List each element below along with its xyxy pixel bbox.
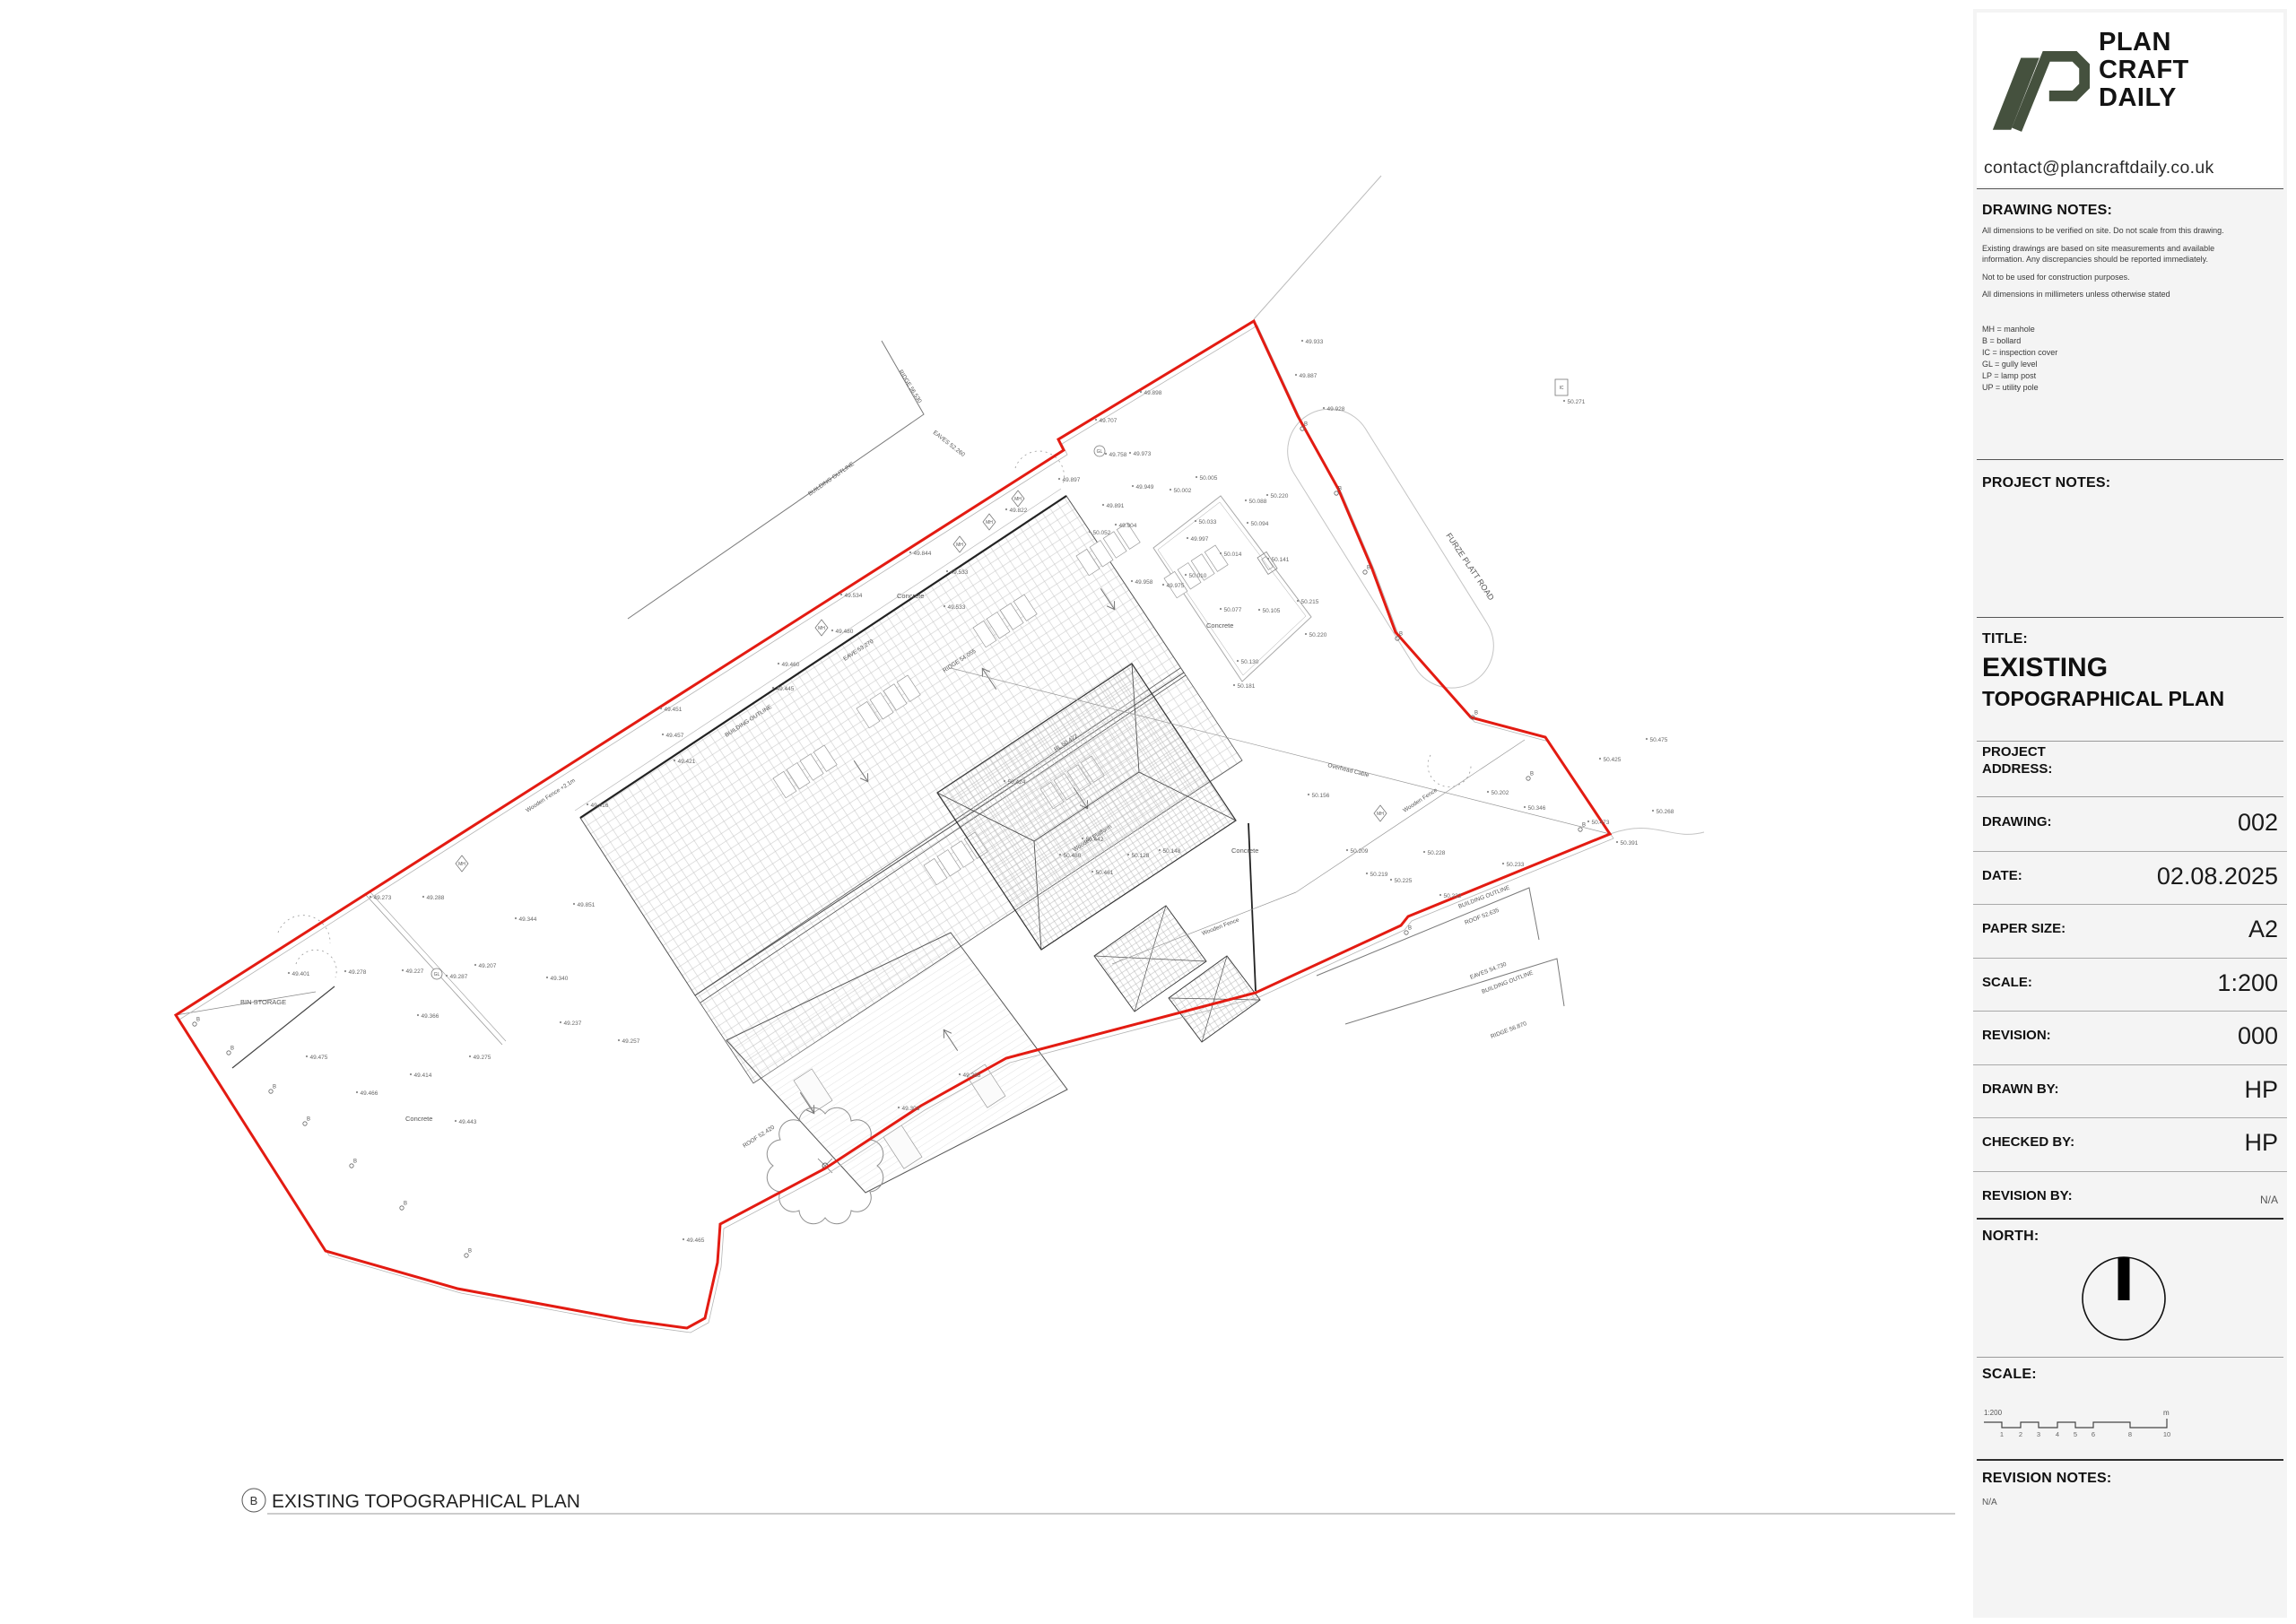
scale-tick: 4 (2056, 1430, 2059, 1438)
scale-bar-ticks: 123456810 (2000, 1430, 2170, 1438)
spot-level-marker (1390, 879, 1392, 881)
utility-label: MH (1377, 812, 1384, 817)
bollard-label: B (273, 1085, 276, 1090)
spot-level-value: 50.014 (1224, 551, 1242, 558)
abbreviation-legend: MH = manhole B = bollard IC = inspection… (1982, 324, 2274, 394)
spot-level-marker (469, 1055, 471, 1057)
spot-level-marker (840, 594, 842, 595)
field-value: 002 (2238, 809, 2278, 837)
spot-level-marker (1220, 608, 1222, 610)
title-block-panel: PLAN CRAFT DAILY contact@plancraftdaily.… (1973, 9, 2287, 1618)
spot-level-value: 50.094 (1251, 521, 1269, 527)
spot-level-value: 49.475 (310, 1055, 328, 1061)
spot-level-marker (573, 903, 575, 905)
plan-label: Concrete (1206, 621, 1233, 630)
field-label: DRAWING: (1982, 814, 2052, 829)
spot-level-value: 49.822 (1010, 508, 1028, 514)
spot-level-marker (1301, 340, 1303, 342)
spot-level-marker (417, 1014, 419, 1016)
spot-level-value: 49.887 (1300, 373, 1318, 379)
brand-line-3: DAILY (2099, 84, 2189, 112)
spot-level-marker (1185, 574, 1187, 576)
title-label: TITLE: (1982, 631, 2224, 647)
spot-level-marker (1366, 873, 1368, 874)
field-label: CHECKED BY: (1982, 1134, 2074, 1150)
spot-level-value: 49.844 (914, 551, 932, 557)
north-arrow-icon (2072, 1248, 2179, 1352)
spot-level-marker (1323, 407, 1325, 409)
spot-level-marker (1089, 531, 1091, 533)
brand-header: PLAN CRAFT DAILY contact@plancraftdaily.… (1977, 13, 2283, 187)
bollard-label: B (1338, 487, 1342, 492)
plan-label: BUILDING OUTLINE (807, 461, 856, 498)
spot-level-marker (515, 917, 517, 919)
drawing-note: All dimensions to be verified on site. D… (1982, 225, 2251, 237)
spot-level-value: 50.128 (1132, 853, 1150, 859)
spot-level-value: 49.401 (292, 971, 310, 977)
spot-level-marker (1587, 821, 1589, 822)
plan-label: Overhead Cable (1327, 762, 1370, 778)
brand-line-2: CRAFT (2099, 56, 2189, 84)
spot-level-value: 49.366 (422, 1013, 439, 1020)
spot-level-value: 49.451 (665, 707, 683, 713)
spot-level-value: 49.466 (361, 1090, 378, 1097)
spot-level-marker (1159, 849, 1161, 851)
bollard-label: B (353, 1159, 357, 1165)
field-row-revision: REVISION:000 (1973, 1012, 2287, 1065)
legend-item: B = bollard (1982, 335, 2274, 347)
spot-level-marker (446, 975, 448, 977)
spot-level-value: 50.130 (1241, 659, 1259, 665)
utility-label: MH (818, 626, 825, 631)
spot-level-marker (546, 977, 548, 978)
scale-tick: 10 (2163, 1430, 2170, 1438)
bollard-label: B (404, 1202, 407, 1207)
plan-label: RIDGE 56.530 (897, 369, 923, 404)
north-heading: NORTH: (1982, 1229, 2039, 1245)
bollard-label: B (1399, 632, 1403, 638)
spot-level-value: 49.533 (948, 604, 966, 611)
spot-level-value: 50.002 (1174, 488, 1192, 494)
field-value: A2 (2248, 916, 2278, 943)
spot-level-marker (356, 1091, 358, 1093)
neighbour-outline-southeast-1 (1317, 888, 1539, 976)
brand-line-1: PLAN (2099, 29, 2189, 56)
spot-level-value: 49.928 (1327, 406, 1345, 413)
drawing-title-line-1: EXISTING (1982, 653, 2224, 683)
spot-level-value: 50.228 (1428, 850, 1446, 856)
legend-item: IC = inspection cover (1982, 347, 2274, 359)
bollard-label: B (1408, 926, 1412, 932)
spot-level-marker (662, 734, 664, 735)
spot-level-value: 50.052 (1093, 530, 1111, 536)
spot-level-value: 49.416 (591, 803, 609, 809)
field-value: HP (2244, 1076, 2278, 1104)
spot-level-value: 50.346 (1528, 805, 1546, 812)
spot-level-marker (306, 1055, 308, 1057)
bollard-label: B (196, 1018, 200, 1023)
spot-level-value: 49.975 (1167, 583, 1185, 589)
spot-level-marker (1423, 851, 1425, 853)
spot-level-value: 49.758 (1109, 452, 1127, 458)
legend-item: UP = utility pole (1982, 382, 2274, 394)
title-section: TITLE: EXISTING TOPOGRAPHICAL PLAN (1982, 631, 2224, 711)
field-row-date: DATE:02.08.2025 (1973, 852, 2287, 906)
utility-label: MH (986, 520, 993, 525)
spot-level-marker (1646, 738, 1648, 740)
spot-level-marker (1267, 558, 1269, 560)
field-value: N/A (2260, 1194, 2278, 1206)
spot-level-marker (1127, 854, 1129, 855)
scale-tick: 6 (2092, 1430, 2095, 1438)
spot-level-marker (402, 969, 404, 971)
plan-label: EAVES 54.730 (1469, 961, 1508, 981)
spot-level-marker (288, 972, 290, 974)
utility-label: MH (956, 543, 963, 548)
spot-level-value: 50.232 (1444, 893, 1462, 899)
field-row-drawing: DRAWING:002 (1973, 798, 2287, 852)
spot-level-value: 49.904 (1119, 523, 1137, 529)
field-value: 000 (2238, 1022, 2278, 1050)
spot-level-marker (946, 570, 948, 572)
spot-level-value: 49.973 (1134, 451, 1152, 457)
spot-level-value: 50.219 (1370, 872, 1388, 878)
spot-level-value: 49.534 (845, 593, 863, 599)
spot-level-marker (474, 964, 476, 966)
spot-level-value: 49.997 (1191, 536, 1209, 543)
spot-level-marker (560, 1021, 561, 1023)
project-notes-heading: PROJECT NOTES: (1982, 475, 2110, 491)
spot-level-marker (422, 896, 424, 898)
spot-level-marker (1132, 485, 1134, 487)
spot-level-value: 50.077 (1224, 607, 1242, 613)
spot-level-marker (1237, 660, 1239, 662)
plan-label: Concrete (405, 1115, 432, 1123)
spot-level-marker (1005, 508, 1007, 510)
spot-level-value: 50.271 (1568, 399, 1586, 405)
spot-level-value: 49.227 (406, 968, 424, 975)
spot-level-value: 50.461 (1096, 870, 1114, 876)
drawing-note: All dimensions in millimeters unless oth… (1982, 289, 2251, 300)
spot-level-marker (909, 551, 911, 553)
utility-label: MH (1014, 497, 1022, 502)
field-label: REVISION BY: (1982, 1188, 2073, 1203)
spot-level-value: 50.033 (1199, 519, 1217, 525)
spot-level-marker (1004, 780, 1005, 782)
spot-level-value: 49.480 (836, 629, 854, 635)
spot-level-marker (1131, 580, 1133, 582)
spot-level-value: 49.897 (1063, 477, 1081, 483)
drawing-note: Not to be used for construction purposes… (1982, 272, 2251, 283)
spot-level-marker (1195, 520, 1196, 522)
drawing-note: Existing drawings are based on site meas… (1982, 243, 2251, 265)
road-furze-platt (1272, 393, 1509, 704)
spot-level-value: 49.288 (963, 1073, 981, 1079)
scale-tick: 5 (2074, 1430, 2077, 1438)
spot-level-marker (1652, 810, 1654, 812)
spot-level-value: 50.181 (1238, 683, 1256, 690)
plan-label: RIDGE 56.870 (1490, 1020, 1527, 1040)
legend-item: MH = manhole (1982, 324, 2274, 335)
spot-level-marker (1297, 600, 1299, 602)
spot-level-marker (1245, 499, 1247, 501)
scale-bar-ratio: 1:200 (1984, 1409, 2003, 1417)
spot-level-value: 50.424 (1008, 779, 1026, 786)
spot-level-marker (1115, 524, 1117, 525)
brand-email: contact@plancraftdaily.co.uk (1984, 158, 2214, 178)
spot-level-marker (1305, 633, 1307, 635)
spot-level-marker (1266, 494, 1268, 496)
spot-level-value: 49.207 (479, 963, 497, 969)
spot-level-value: 50.220 (1271, 493, 1289, 499)
utility-label: MH (458, 862, 465, 867)
spot-level-marker (683, 1238, 684, 1240)
spot-level-marker (618, 1039, 620, 1041)
neighbour-outline-southeast-2 (1345, 959, 1564, 1024)
plan-label: Concrete (1231, 847, 1258, 855)
spot-level-marker (1220, 552, 1222, 554)
spot-level-value: 49.949 (1136, 484, 1154, 491)
spot-level-marker (1102, 504, 1104, 506)
spot-level-value: 49.707 (1100, 418, 1118, 424)
spot-level-value: 49.851 (578, 902, 596, 908)
spot-level-value: 50.220 (1309, 632, 1327, 638)
spot-level-marker (1439, 894, 1441, 896)
spot-level-marker (1170, 489, 1171, 491)
field-label: PAPER SIZE: (1982, 921, 2066, 936)
project-address-section: PROJECT ADDRESS: (1982, 744, 2052, 778)
spot-level-value: 50.268 (1657, 809, 1674, 815)
spot-level-value: 49.288 (427, 895, 445, 901)
spot-level-marker (674, 760, 675, 761)
spot-level-marker (1105, 453, 1107, 455)
spot-level-value: 49.460 (782, 662, 800, 668)
spot-level-value: 50.425 (1604, 757, 1622, 763)
spot-level-marker (370, 896, 371, 898)
spot-level-value: 50.005 (1200, 475, 1218, 482)
spot-level-value: 49.465 (687, 1238, 705, 1244)
spot-level-value: 49.445 (777, 686, 795, 692)
plan-label: EAVES 52.260 (932, 430, 966, 458)
spot-level-value: 49.237 (564, 1020, 582, 1027)
plan-label: Concrete (897, 592, 924, 600)
spot-level-marker (1187, 537, 1188, 539)
spot-level-marker (1346, 849, 1348, 851)
field-value: 02.08.2025 (2157, 863, 2278, 890)
bollard-label: B (230, 1046, 234, 1052)
spot-level-value: 50.202 (1492, 790, 1509, 796)
spot-level-value: 50.215 (1301, 599, 1319, 605)
bollard-label: B (1367, 566, 1370, 571)
spot-level-marker (944, 605, 945, 607)
spot-level-marker (1616, 841, 1618, 843)
spot-level-value: 49.344 (519, 916, 537, 923)
spot-level-value: 50.480 (1064, 853, 1082, 859)
spot-level-value: 49.414 (414, 1073, 432, 1079)
utility-label: GL (1097, 449, 1103, 455)
address-label-line-1: PROJECT (1982, 744, 2052, 761)
plan-label: Wooden Fence +2.1m (525, 777, 577, 814)
spot-level-marker (1487, 791, 1489, 793)
spot-level-marker (1295, 374, 1297, 376)
field-row-revision-by: REVISION BY:N/A (1973, 1172, 2287, 1225)
spot-level-marker (898, 1107, 900, 1108)
spot-level-value: 49.533 (951, 569, 969, 576)
spot-level-marker (1140, 391, 1142, 393)
spot-level-value: 50.141 (1272, 557, 1290, 563)
spot-level-marker (1599, 758, 1601, 760)
spot-level-value: 50.233 (1507, 862, 1525, 868)
bollard-label: B (1530, 772, 1534, 777)
spot-level-value: 49.898 (1144, 390, 1162, 396)
bollard-label: B (1474, 711, 1478, 716)
plan-label: ROOF 52.635 (1464, 908, 1500, 926)
spot-level-value: 49.421 (678, 759, 696, 765)
revision-notes-value: N/A (1982, 1498, 1997, 1507)
spot-level-marker (587, 803, 588, 805)
spot-level-marker (1233, 684, 1235, 686)
spot-level-marker (1095, 419, 1097, 421)
scale-tick: 3 (2037, 1430, 2040, 1438)
spot-level-value: 49.278 (349, 969, 367, 976)
field-value: 1:200 (2217, 969, 2278, 997)
field-label: REVISION: (1982, 1028, 2051, 1043)
scale-bar: 1:200 m 123456810 (1979, 1404, 2194, 1449)
plan-label: ROOF 52.420 (742, 1125, 776, 1150)
brand-name: PLAN CRAFT DAILY (2099, 29, 2189, 112)
spot-level-marker (1502, 863, 1504, 864)
spot-level-marker (1091, 871, 1093, 873)
address-label-line-2: ADDRESS: (1982, 761, 2052, 778)
plan-label: BIN STORAGE (240, 998, 286, 1006)
spot-level-marker (1247, 522, 1248, 524)
spot-level-marker (1129, 452, 1131, 454)
site-plan-canvas: MHMHMHMHMHMHGLGLIC BBBBBBBBBBBBBBB 49.89… (0, 0, 2296, 1624)
scale-bar-unit: m (2163, 1409, 2170, 1417)
spot-level-value: 50.475 (1650, 737, 1668, 743)
caption-title: EXISTING TOPOGRAPHICAL PLAN (272, 1491, 580, 1512)
bollard-label: B (1582, 823, 1586, 829)
drawing-title-line-2: TOPOGRAPHICAL PLAN (1982, 687, 2224, 711)
spot-level-value: 49.273 (374, 895, 392, 901)
spot-level-value: 49.891 (1107, 503, 1125, 509)
bollard-label: B (468, 1249, 472, 1255)
spot-level-value: 50.148 (1163, 848, 1181, 855)
spot-level-value: 49.457 (666, 733, 684, 739)
plancraftdaily-logo-icon (1986, 38, 2092, 147)
scale-heading: SCALE: (1982, 1367, 2037, 1383)
spot-level-marker (1082, 838, 1083, 839)
spot-level-value: 50.473 (1592, 820, 1610, 826)
road-edge-north (1254, 176, 1381, 319)
revision-notes-heading: REVISION NOTES: (1982, 1471, 2111, 1487)
spot-level-value: 50.088 (1249, 499, 1267, 505)
spot-level-value: 49.303 (902, 1106, 920, 1112)
spot-level-marker (1162, 584, 1164, 586)
drawing-notes-heading: DRAWING NOTES: (1982, 203, 2274, 219)
spot-level-marker (344, 970, 346, 972)
neighbour-outline-north (628, 341, 924, 619)
spot-level-marker (959, 1073, 961, 1075)
bollard-label: B (307, 1117, 310, 1123)
spot-level-marker (831, 630, 833, 631)
bollard-label: B (1304, 422, 1308, 428)
spot-level-value: 49.257 (622, 1038, 640, 1045)
spot-level-value: 49.275 (474, 1055, 491, 1061)
spot-level-value: 50.010 (1189, 573, 1207, 579)
spot-level-value: 49.340 (551, 976, 569, 982)
yard-grate (1257, 551, 1277, 574)
spot-level-marker (1563, 400, 1565, 402)
field-rows: DRAWING:002 DATE:02.08.2025 PAPER SIZE:A… (1973, 798, 2287, 1224)
field-row-scale: SCALE:1:200 (1973, 959, 2287, 1012)
spot-level-value: 50.105 (1263, 608, 1281, 614)
field-row-checked-by: CHECKED BY:HP (1973, 1118, 2287, 1172)
field-row-drawn-by: DRAWN BY:HP (1973, 1065, 2287, 1119)
spot-level-value: 49.933 (1306, 339, 1324, 345)
drawing-caption: B EXISTING TOPOGRAPHICAL PLAN (242, 1489, 1955, 1514)
scale-tick: 8 (2128, 1430, 2132, 1438)
legend-item: LP = lamp post (1982, 370, 2274, 382)
spot-level-marker (1308, 794, 1309, 795)
spot-level-marker (1524, 806, 1526, 808)
spot-level-value: 50.209 (1351, 848, 1369, 855)
scale-tick: 1 (2000, 1430, 2004, 1438)
scale-tick: 2 (2019, 1430, 2022, 1438)
spot-level-value: 50.225 (1395, 878, 1413, 884)
utility-label: GL (434, 972, 440, 977)
spot-level-marker (1058, 478, 1060, 480)
spot-level-marker (778, 663, 779, 664)
field-value: HP (2244, 1129, 2278, 1157)
caption-ref: B (250, 1494, 258, 1507)
spot-level-value: 50.391 (1621, 840, 1639, 847)
spot-level-marker (772, 687, 774, 689)
spot-level-marker (455, 1120, 457, 1122)
spot-level-value: 49.443 (459, 1119, 477, 1125)
legend-item: GL = gully level (1982, 359, 2274, 370)
field-label: DRAWN BY: (1982, 1081, 2059, 1097)
spot-level-marker (1059, 854, 1061, 855)
field-label: SCALE: (1982, 975, 2032, 990)
road-tail (1610, 828, 1704, 834)
spot-level-marker (1196, 476, 1197, 478)
spot-level-marker (410, 1073, 412, 1075)
spot-level-marker (1258, 609, 1260, 611)
drawing-notes-section: DRAWING NOTES: All dimensions to be veri… (1982, 203, 2274, 394)
spot-level-value: 49.287 (450, 974, 468, 980)
field-row-paper-size: PAPER SIZE:A2 (1973, 905, 2287, 959)
spot-level-marker (660, 708, 662, 709)
spot-level-value: 49.958 (1135, 579, 1153, 586)
utility-label: IC (1560, 386, 1564, 391)
field-label: DATE: (1982, 868, 2022, 883)
spot-level-value: 50.156 (1312, 793, 1330, 799)
